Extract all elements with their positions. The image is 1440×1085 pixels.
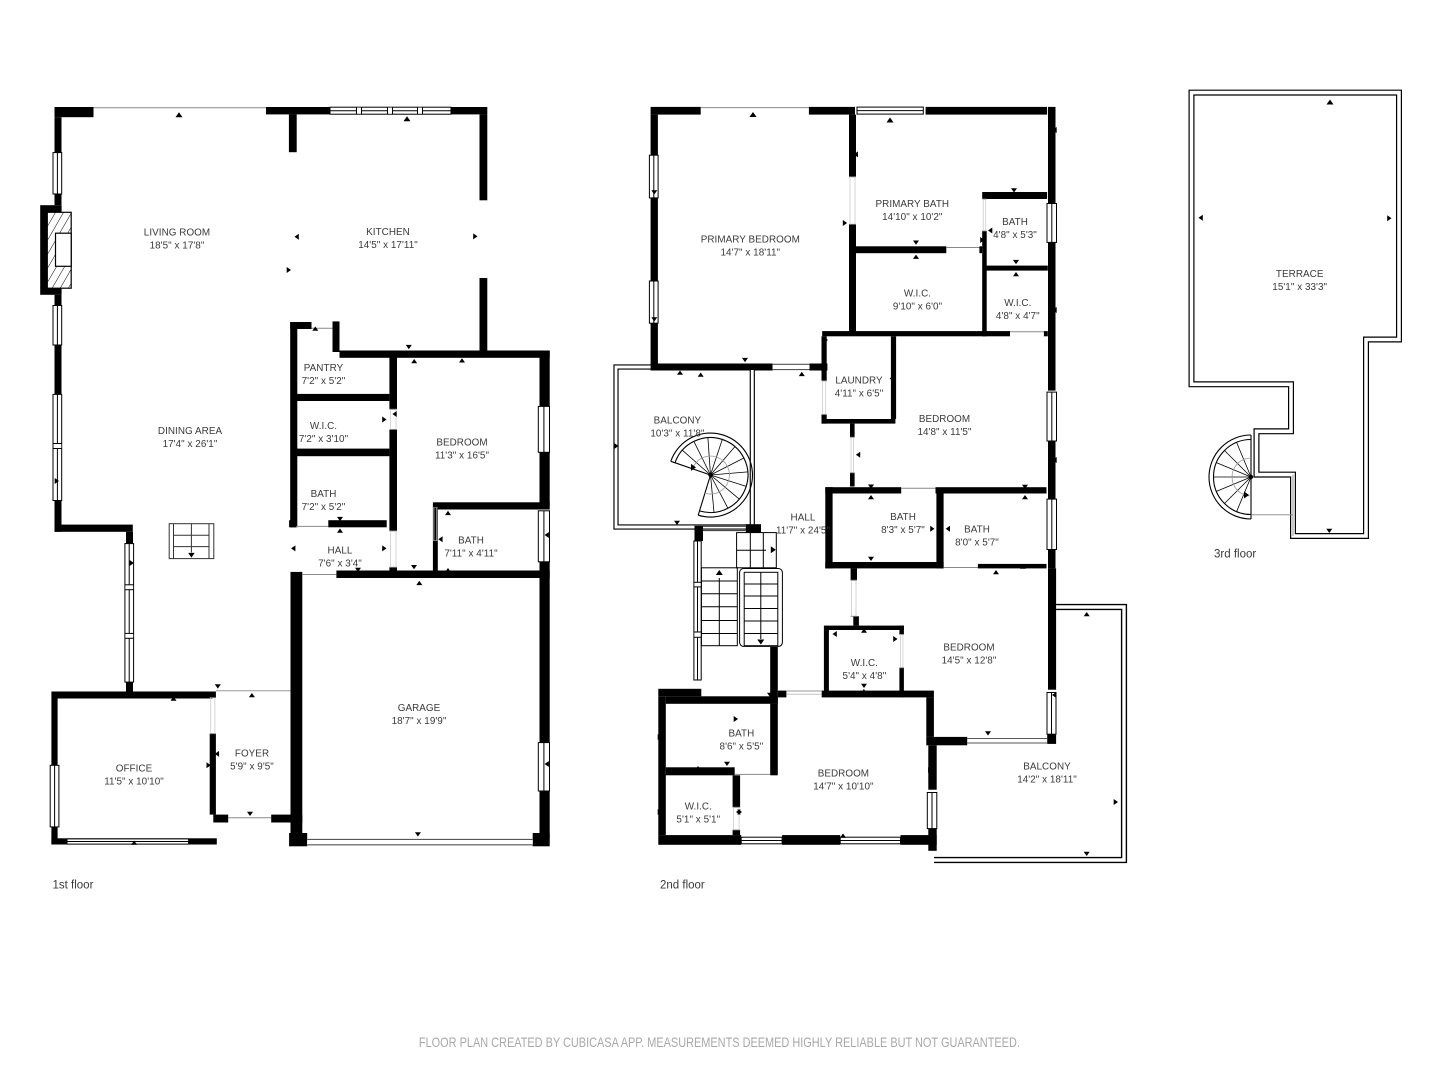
svg-text:W.I.C.: W.I.C. <box>851 658 878 669</box>
svg-text:BEDROOM: BEDROOM <box>943 642 994 653</box>
svg-text:FOYER: FOYER <box>235 748 269 759</box>
svg-text:LIVING ROOM: LIVING ROOM <box>144 228 210 239</box>
svg-text:GARAGE: GARAGE <box>398 703 441 714</box>
svg-text:2nd floor: 2nd floor <box>660 880 705 892</box>
svg-text:HALL: HALL <box>791 513 816 524</box>
svg-text:PANTRY: PANTRY <box>304 363 344 374</box>
svg-text:7'2" x 5'2": 7'2" x 5'2" <box>302 376 346 387</box>
svg-text:15'1" x 33'3": 15'1" x 33'3" <box>1272 282 1327 293</box>
svg-text:W.I.C.: W.I.C. <box>904 289 931 300</box>
svg-text:BEDROOM: BEDROOM <box>818 768 869 779</box>
svg-text:BATH: BATH <box>890 512 916 523</box>
svg-text:BATH: BATH <box>964 525 990 536</box>
svg-text:11'5" x 10'10": 11'5" x 10'10" <box>104 776 164 787</box>
svg-text:5'1" x 5'1": 5'1" x 5'1" <box>676 815 720 826</box>
svg-text:W.I.C.: W.I.C. <box>310 421 337 432</box>
svg-text:DINING AREA: DINING AREA <box>158 426 223 437</box>
svg-text:8'6" x 5'5": 8'6" x 5'5" <box>720 742 764 753</box>
svg-text:LAUNDRY: LAUNDRY <box>835 375 883 386</box>
svg-text:BEDROOM: BEDROOM <box>919 414 970 425</box>
svg-text:HALL: HALL <box>328 546 353 557</box>
svg-text:11'3" x 16'5": 11'3" x 16'5" <box>435 451 490 462</box>
svg-text:14'5" x 17'11": 14'5" x 17'11" <box>358 240 418 251</box>
svg-text:BATH: BATH <box>311 489 337 500</box>
svg-text:7'11" x 4'11": 7'11" x 4'11" <box>444 549 498 560</box>
svg-text:8'0" x 5'7": 8'0" x 5'7" <box>955 538 999 549</box>
svg-text:10'3" x 11'8": 10'3" x 11'8" <box>650 429 705 440</box>
svg-text:17'4" x 26'1": 17'4" x 26'1" <box>163 439 218 450</box>
svg-text:14'8" x 11'5": 14'8" x 11'5" <box>917 427 972 438</box>
svg-text:BATH: BATH <box>728 729 754 740</box>
svg-text:14'10" x 10'2": 14'10" x 10'2" <box>882 212 943 223</box>
svg-text:3rd floor: 3rd floor <box>1214 549 1256 561</box>
svg-text:BATH: BATH <box>1002 217 1028 228</box>
svg-text:BALCONY: BALCONY <box>1023 762 1071 773</box>
svg-text:9'10" x 6'0": 9'10" x 6'0" <box>893 302 943 313</box>
svg-text:11'7" x 24'5": 11'7" x 24'5" <box>776 526 831 537</box>
svg-text:W.I.C.: W.I.C. <box>685 802 712 813</box>
svg-text:BALCONY: BALCONY <box>654 416 702 427</box>
svg-text:7'6" x 3'4": 7'6" x 3'4" <box>318 559 362 570</box>
svg-text:14'2" x 18'11": 14'2" x 18'11" <box>1017 775 1077 786</box>
svg-text:8'3" x 5'7": 8'3" x 5'7" <box>881 525 925 536</box>
svg-text:BEDROOM: BEDROOM <box>436 438 487 449</box>
svg-text:W.I.C.: W.I.C. <box>1004 298 1031 309</box>
svg-text:BATH: BATH <box>458 536 484 547</box>
svg-text:4'11" x 6'5": 4'11" x 6'5" <box>835 388 884 399</box>
svg-text:14'7" x 10'10": 14'7" x 10'10" <box>813 781 874 792</box>
svg-text:5'4" x 4'8": 5'4" x 4'8" <box>843 671 887 682</box>
svg-text:4'8" x 5'3": 4'8" x 5'3" <box>993 230 1037 241</box>
svg-text:18'7" x 19'9": 18'7" x 19'9" <box>392 716 447 727</box>
svg-text:1st floor: 1st floor <box>53 880 94 892</box>
svg-text:PRIMARY BEDROOM: PRIMARY BEDROOM <box>701 234 800 245</box>
svg-text:PRIMARY BATH: PRIMARY BATH <box>876 199 950 210</box>
svg-text:7'2" x 5'2": 7'2" x 5'2" <box>302 502 346 513</box>
svg-text:5'9" x 9'5": 5'9" x 9'5" <box>230 761 274 772</box>
svg-text:18'5" x 17'8": 18'5" x 17'8" <box>150 241 205 252</box>
svg-text:FLOOR PLAN CREATED BY CUBICASA: FLOOR PLAN CREATED BY CUBICASA APP. MEAS… <box>419 1034 1020 1050</box>
svg-text:7'2" x 3'10": 7'2" x 3'10" <box>299 434 349 445</box>
svg-text:4'8" x 4'7": 4'8" x 4'7" <box>996 311 1040 322</box>
svg-text:TERRACE: TERRACE <box>1276 269 1324 280</box>
svg-text:OFFICE: OFFICE <box>116 763 153 774</box>
svg-text:14'7" x 18'11": 14'7" x 18'11" <box>720 247 780 258</box>
svg-text:KITCHEN: KITCHEN <box>366 227 410 238</box>
svg-text:14'5" x 12'8": 14'5" x 12'8" <box>942 655 997 666</box>
